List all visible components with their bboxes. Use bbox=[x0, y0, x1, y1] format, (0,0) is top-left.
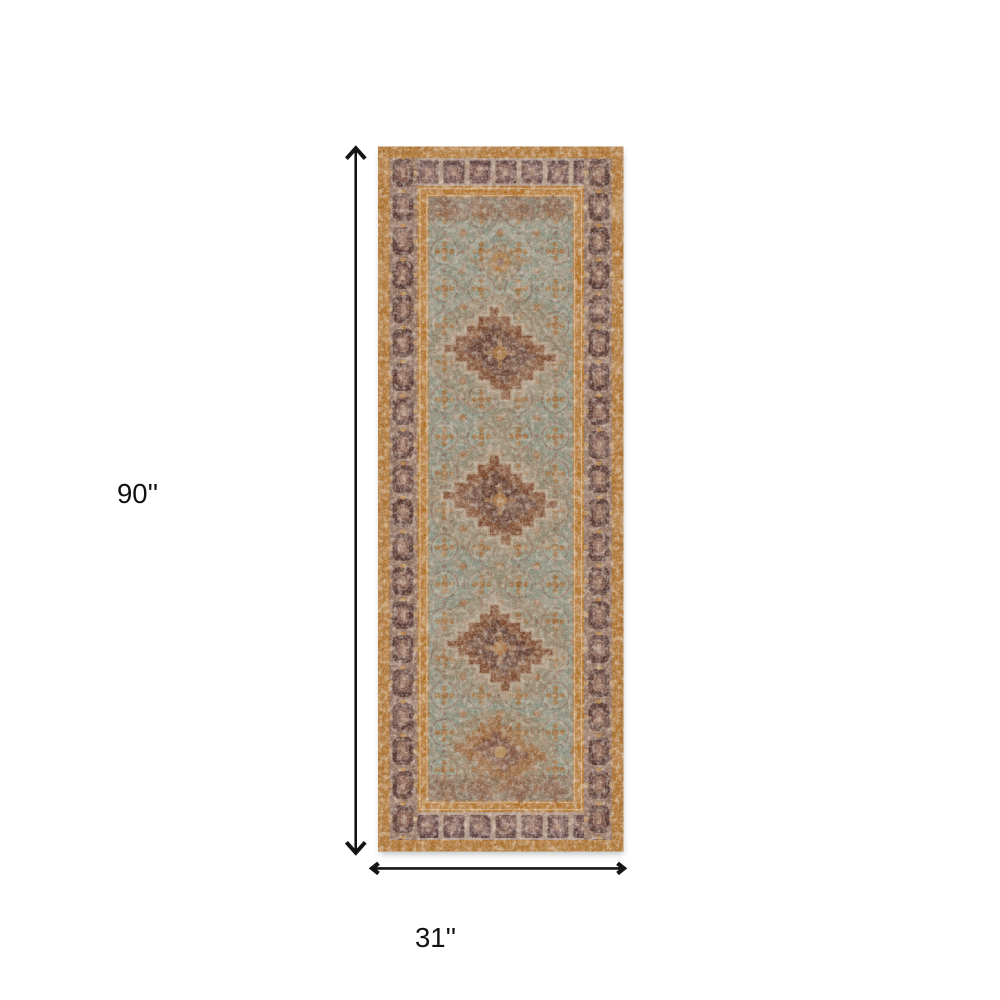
svg-text:90'': 90'' bbox=[117, 478, 158, 509]
svg-text:31'': 31'' bbox=[415, 922, 456, 953]
